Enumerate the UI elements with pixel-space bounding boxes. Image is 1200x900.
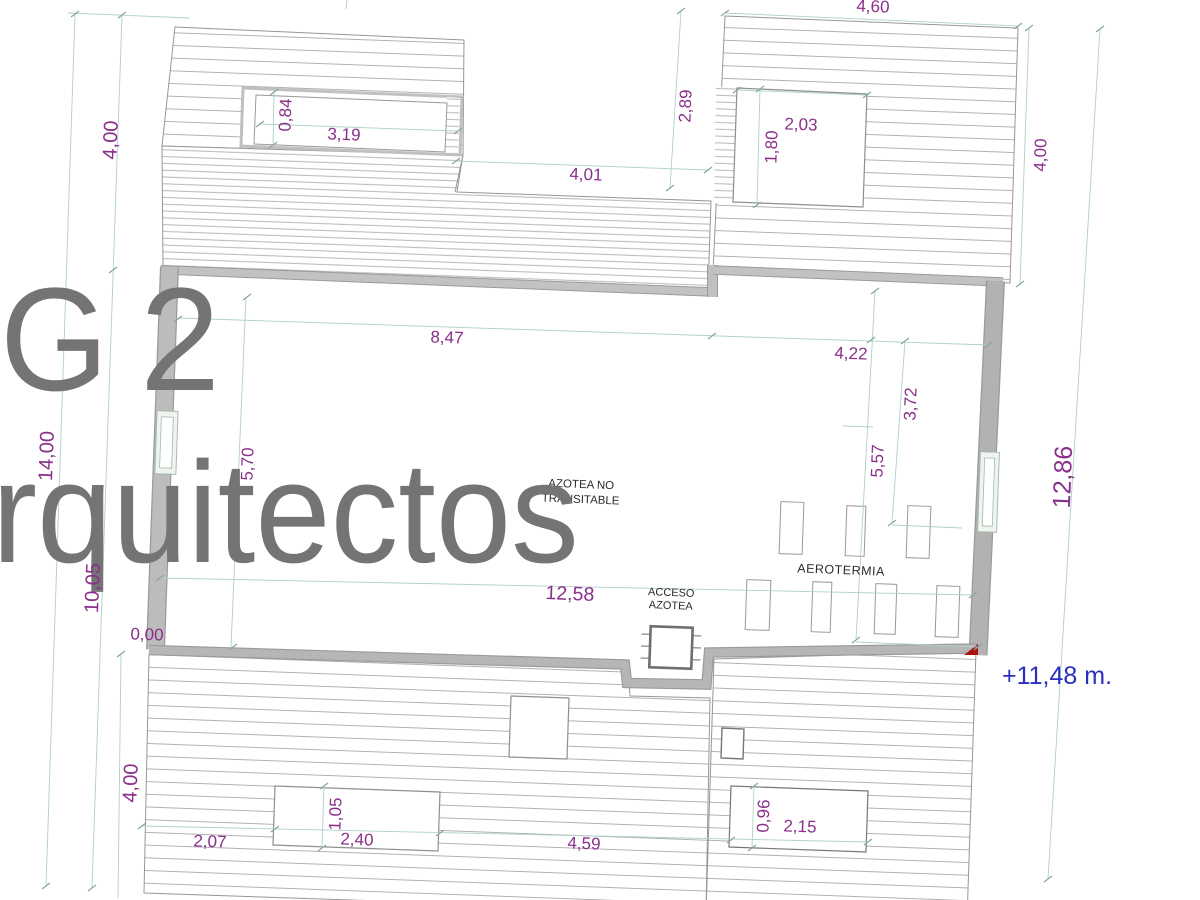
svg-text:1,05: 1,05: [325, 797, 345, 831]
svg-text:1,80: 1,80: [761, 130, 781, 164]
svg-text:4,22: 4,22: [834, 343, 868, 363]
svg-text:G: G: [0, 258, 109, 422]
svg-text:0,84: 0,84: [275, 98, 295, 132]
svg-text:5,70: 5,70: [237, 447, 257, 481]
svg-text:5,57: 5,57: [867, 444, 887, 478]
svg-text:12,86: 12,86: [1048, 445, 1078, 509]
svg-text:3,72: 3,72: [900, 387, 920, 421]
svg-text:14,00: 14,00: [35, 431, 59, 482]
svg-text:10,05: 10,05: [81, 563, 105, 614]
svg-text:2: 2: [140, 257, 220, 422]
svg-text:4,01: 4,01: [569, 164, 603, 184]
svg-text:0,96: 0,96: [753, 799, 773, 833]
svg-text:ACCESO: ACCESO: [648, 586, 695, 600]
svg-text:AZOTEA: AZOTEA: [649, 599, 694, 613]
svg-text:3,19: 3,19: [327, 124, 361, 144]
svg-text:4,59: 4,59: [567, 833, 601, 853]
svg-text:2,07: 2,07: [193, 831, 227, 851]
svg-text:4,00: 4,00: [1030, 138, 1050, 172]
svg-text:2,15: 2,15: [783, 816, 817, 836]
svg-text:4,00: 4,00: [119, 763, 142, 803]
svg-text:0,00: 0,00: [130, 624, 164, 644]
svg-text:12,58: 12,58: [545, 582, 595, 606]
svg-text:2,89: 2,89: [675, 89, 695, 123]
svg-text:2,40: 2,40: [340, 829, 374, 849]
svg-text:4,60: 4,60: [856, 0, 890, 17]
svg-text:+11,48 m.: +11,48 m.: [1002, 662, 1112, 690]
svg-text:2,03: 2,03: [784, 114, 818, 134]
svg-text:8,47: 8,47: [430, 327, 464, 347]
svg-text:4,00: 4,00: [99, 120, 122, 160]
